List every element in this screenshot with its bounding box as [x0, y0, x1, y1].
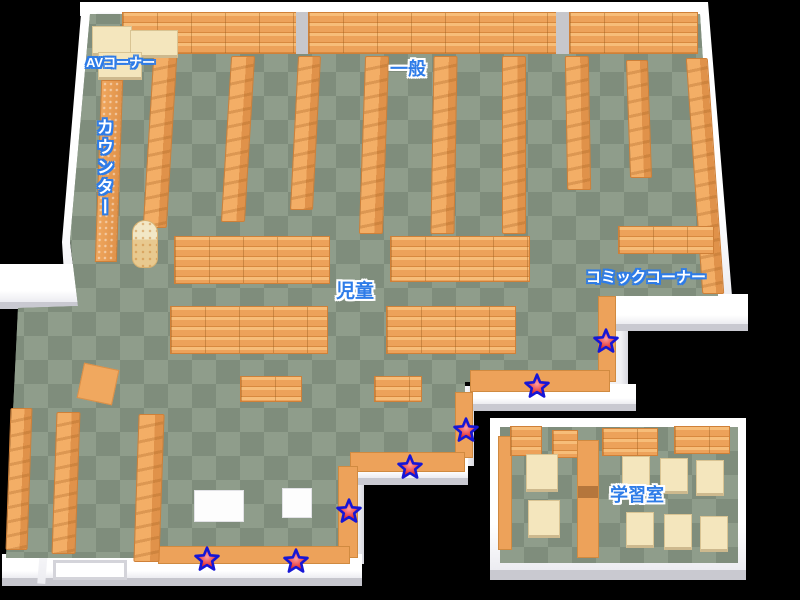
study-desk	[700, 516, 728, 552]
floor-mat	[194, 490, 244, 522]
door[interactable]	[53, 560, 127, 580]
star-marker[interactable]	[593, 328, 619, 354]
wall-shelf-trim	[158, 546, 350, 564]
bookshelf	[502, 56, 526, 234]
bookshelf	[626, 60, 652, 178]
room-divider	[577, 440, 599, 558]
study-desk	[528, 500, 560, 538]
bookshelf	[430, 56, 457, 234]
bookshelf	[390, 236, 530, 282]
divider-gap	[578, 486, 598, 498]
bookshelf	[308, 12, 558, 54]
bookshelf	[386, 306, 516, 354]
study-desk	[696, 460, 724, 496]
av-desk	[98, 52, 142, 80]
low-bookshelf	[374, 376, 422, 402]
bookshelf	[565, 56, 591, 190]
star-marker[interactable]	[397, 454, 423, 480]
star-marker[interactable]	[453, 417, 479, 443]
study-desk	[660, 458, 688, 494]
star-marker[interactable]	[283, 548, 309, 574]
library-floor-map: AVコーナー カウンター 一般 児童 コミックコーナー 学習室	[0, 0, 800, 600]
floor-mat	[282, 488, 312, 518]
bookshelf	[133, 414, 164, 562]
study-desk	[526, 454, 558, 492]
bookshelf	[569, 12, 698, 54]
study-desk	[664, 514, 692, 550]
bookshelf	[674, 426, 730, 454]
star-marker[interactable]	[524, 373, 550, 399]
study-desk	[626, 512, 654, 548]
star-marker[interactable]	[336, 498, 362, 524]
round-kiosk	[132, 220, 158, 268]
reading-table	[77, 363, 120, 406]
bookshelf	[602, 428, 658, 456]
low-bookshelf	[240, 376, 302, 402]
step-ledge	[612, 294, 748, 331]
bookshelf	[170, 306, 328, 354]
comic-bookshelf	[618, 226, 714, 254]
alcove-wall	[0, 264, 80, 309]
bookshelf	[510, 426, 542, 456]
bookshelf	[174, 236, 330, 284]
doorway-gap	[556, 12, 569, 54]
bookshelf	[52, 412, 81, 554]
study-desk	[622, 456, 650, 492]
star-marker[interactable]	[194, 546, 220, 572]
